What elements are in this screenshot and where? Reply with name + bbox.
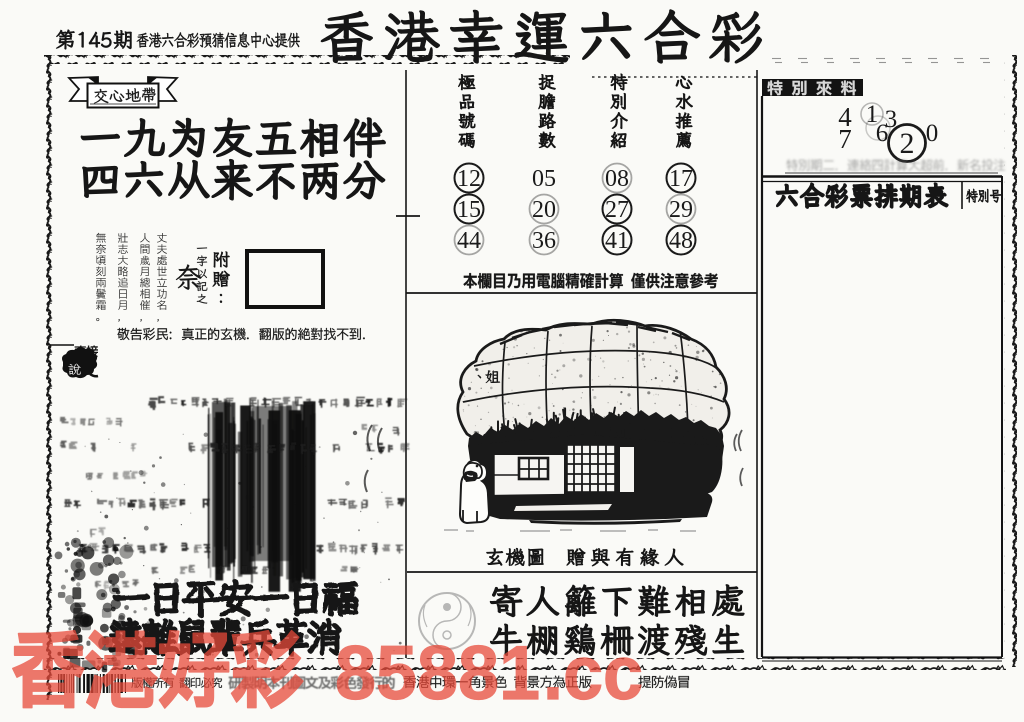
svg-text:0: 0: [926, 120, 939, 147]
svg-text:36: 36: [532, 228, 556, 254]
svg-text:44: 44: [457, 228, 481, 254]
svg-text:85881: 85881: [335, 631, 540, 716]
svg-text:29: 29: [669, 197, 693, 223]
svg-text:20: 20: [532, 197, 556, 223]
svg-text:05: 05: [532, 166, 556, 192]
svg-text:15: 15: [457, 197, 481, 223]
svg-text:12: 12: [457, 166, 481, 192]
svg-text:41: 41: [605, 228, 629, 254]
svg-text:6: 6: [876, 120, 889, 147]
svg-text:.cc: .cc: [543, 631, 643, 716]
svg-text:27: 27: [605, 197, 629, 223]
svg-text:48: 48: [669, 228, 693, 254]
svg-text:17: 17: [669, 166, 693, 192]
svg-text:2: 2: [900, 127, 915, 160]
svg-text:08: 08: [605, 166, 629, 192]
svg-text:7: 7: [838, 124, 852, 154]
